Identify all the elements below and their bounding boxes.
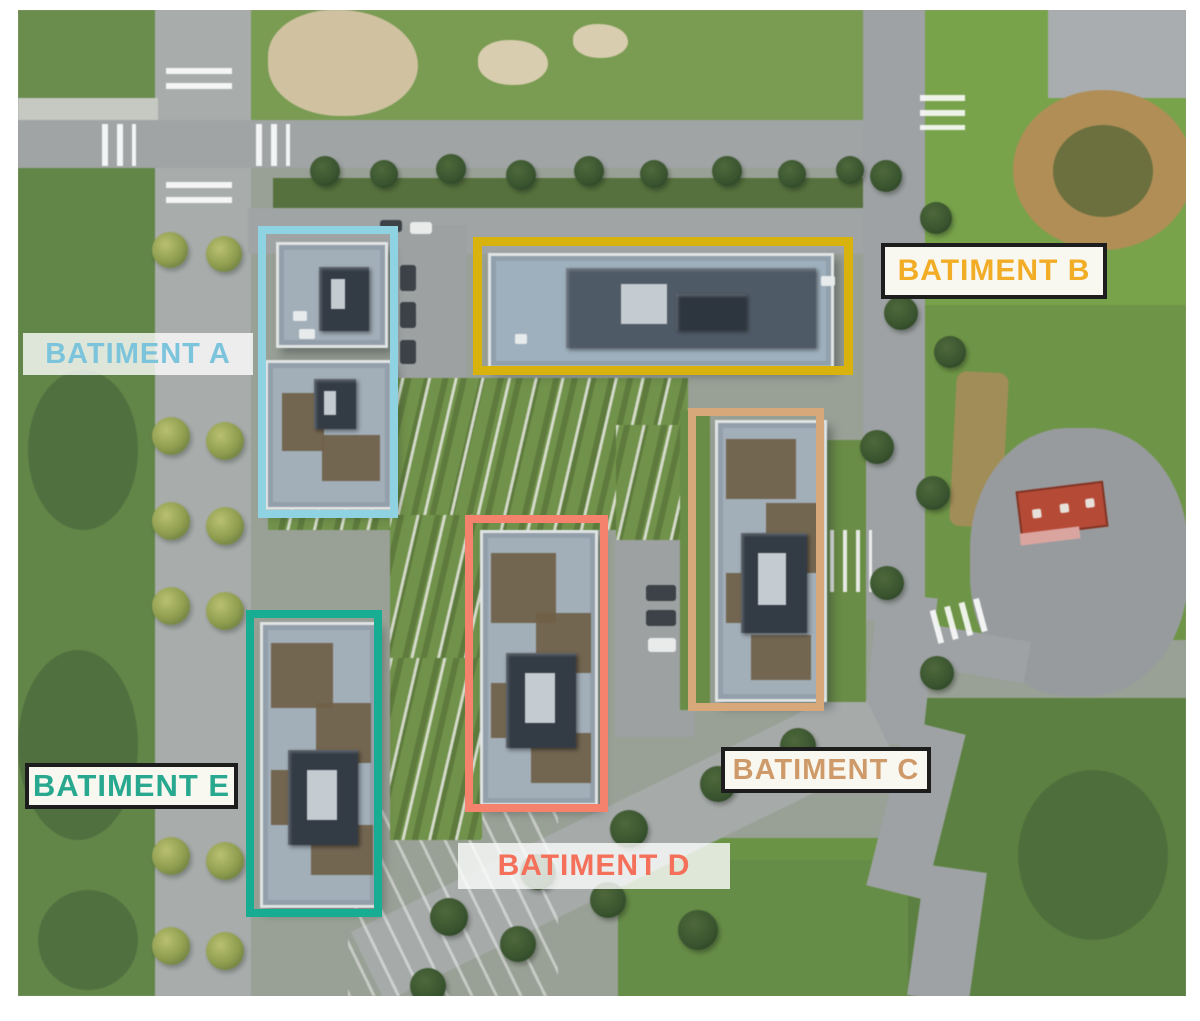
building-label-e: BATIMENT E bbox=[25, 763, 238, 809]
building-label-d-text: BATIMENT D bbox=[498, 849, 691, 883]
building-label-b: BATIMENT B bbox=[881, 243, 1107, 299]
figure-page: BATIMENT A BATIMENT B BATIMENT C BATIMEN… bbox=[0, 0, 1200, 1021]
building-label-c: BATIMENT C bbox=[721, 747, 931, 793]
building-label-c-text: BATIMENT C bbox=[733, 754, 920, 787]
building-label-a-text: BATIMENT A bbox=[45, 338, 231, 371]
building-label-e-text: BATIMENT E bbox=[33, 768, 230, 804]
aerial-photo: BATIMENT A BATIMENT B BATIMENT C BATIMEN… bbox=[18, 10, 1186, 996]
building-label-b-text: BATIMENT B bbox=[898, 254, 1091, 288]
annotation-layer: BATIMENT A BATIMENT B BATIMENT C BATIMEN… bbox=[18, 10, 1186, 996]
building-box-d bbox=[465, 515, 608, 812]
building-box-c bbox=[688, 408, 824, 711]
building-box-e bbox=[246, 610, 382, 917]
building-label-d: BATIMENT D bbox=[458, 843, 730, 889]
building-box-b bbox=[473, 237, 853, 375]
building-label-a: BATIMENT A bbox=[23, 333, 253, 375]
building-box-a bbox=[258, 226, 398, 518]
